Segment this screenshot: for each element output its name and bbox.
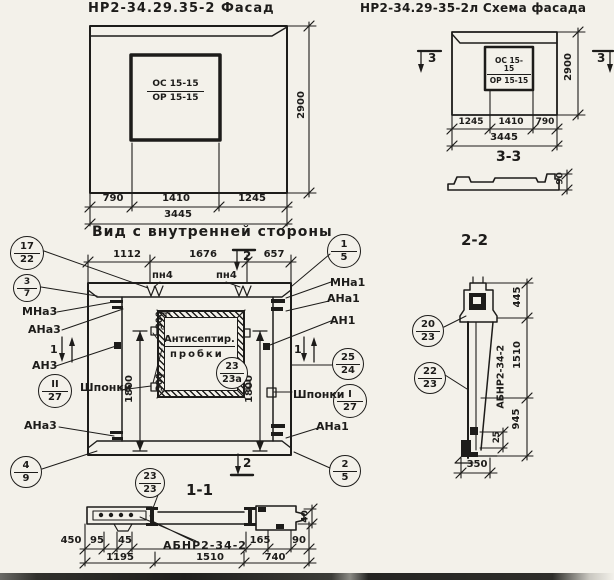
- callout-1-5: 1 5: [327, 234, 361, 268]
- schema-section-mark-right: 3: [597, 52, 605, 64]
- callout-top: 2: [333, 460, 357, 472]
- callout-25-24: 25 24: [332, 348, 364, 380]
- callout-23-23a: 23 23а: [216, 357, 248, 389]
- schema-section-mark-left: 3: [428, 52, 436, 64]
- s11-dim-165: 165: [248, 536, 272, 546]
- dim-plug-bottom: 300: [156, 371, 165, 393]
- label-ana1-bottom: АНа1: [316, 421, 349, 432]
- s22-dim-25: 25: [493, 429, 502, 445]
- facade-caption: Вид с внутренней стороны: [92, 225, 333, 239]
- s11-dim-95: 95: [88, 536, 106, 546]
- s11-dim-90: 90: [290, 536, 308, 546]
- callout-ii-27: II 27: [38, 374, 72, 408]
- s22-beam-label: АБНР2-34-2: [496, 334, 506, 420]
- note-antiseptic-line1: Антисептир.: [164, 335, 235, 347]
- s11-dim-740: 740: [262, 553, 288, 563]
- callout-bottom: 9: [14, 473, 38, 484]
- s22-dim-1510: 1510: [513, 340, 523, 370]
- main-top-dim-3: 657: [257, 250, 291, 260]
- s11-dim-1195: 1195: [105, 553, 135, 563]
- callout-top: 25: [336, 353, 360, 365]
- dim-1800-left: 1800: [125, 371, 135, 407]
- callout-bottom: 23: [139, 484, 161, 495]
- label-ana3-bottom: АНа3: [24, 420, 57, 431]
- s22-dim-350: 350: [465, 460, 489, 470]
- section-2-2-title: 2-2: [461, 233, 488, 248]
- section-mark-2-top: 2: [243, 250, 251, 262]
- label-ana3-top: АНа3: [28, 324, 61, 335]
- label-an3: АН3: [32, 360, 57, 371]
- label-mna1: МНа1: [330, 277, 365, 288]
- window-mark-bottom: ОР 15-15: [147, 92, 204, 103]
- scan-artifact-strip: [0, 573, 614, 580]
- callout-top: I: [337, 390, 363, 402]
- dim-plug-top: 300: [156, 309, 165, 331]
- callout-top: 3: [17, 278, 38, 289]
- s11-dim-1510: 1510: [193, 553, 227, 563]
- callout-bottom: 5: [331, 252, 357, 263]
- callout-top: II: [42, 380, 68, 392]
- callout-17-22: 17 22: [10, 236, 44, 270]
- section-mark-2-bottom: 2: [243, 457, 251, 469]
- facade-window-mark: ОС 15-15 ОР 15-15: [147, 80, 204, 103]
- callout-bottom: 23: [418, 379, 442, 390]
- schema-panel-linework: [418, 27, 613, 195]
- callout-top: 4: [14, 461, 38, 473]
- s11-dim-45: 45: [116, 536, 134, 546]
- s22-dim-945: 945: [512, 406, 522, 432]
- callout-4-9: 4 9: [10, 456, 42, 488]
- s11-beam-label: АБНР2-34-2: [163, 540, 247, 551]
- callout-top: 1: [331, 240, 357, 252]
- facade-dim-2: 1410: [146, 194, 206, 204]
- schema-dim-total: 3445: [486, 133, 522, 143]
- callout-bottom: 27: [337, 402, 363, 413]
- callout-20-23: 20 23: [412, 315, 444, 347]
- callout-top: 23: [220, 362, 244, 374]
- note-antiseptic-line2: пробки: [170, 350, 224, 360]
- facade-dim-1: 790: [93, 194, 133, 204]
- facade-dim-3: 1245: [222, 194, 282, 204]
- schema-dim-1: 1245: [453, 118, 489, 127]
- callout-3-7: 3 7: [13, 274, 41, 302]
- section-mark-1-right: 1: [294, 344, 302, 355]
- callout-top: 22: [418, 367, 442, 379]
- callout-top: 20: [416, 320, 440, 332]
- callout-2-5: 2 5: [329, 455, 361, 487]
- s22-dim-445: 445: [513, 283, 523, 311]
- s11-dim-450: 450: [58, 536, 84, 546]
- anchor-pn4-left: пн4: [152, 271, 173, 281]
- label-an1: АН1: [330, 315, 355, 326]
- anchor-pn4-right: пн4: [216, 271, 237, 281]
- schema-title: НР2-34.29-35-2л Схема фасада: [360, 2, 586, 14]
- callout-top: 23: [139, 472, 161, 484]
- window-mark-top: ОС 15-15: [487, 57, 531, 75]
- callout-bottom: 23: [416, 332, 440, 343]
- label-ana1-top: АНа1: [327, 293, 360, 304]
- callout-bottom: 24: [336, 365, 360, 376]
- label-mna3: МНа3: [22, 306, 57, 317]
- callout-bottom: 27: [42, 392, 68, 403]
- window-mark-top: ОС 15-15: [147, 80, 204, 92]
- callout-top: 17: [14, 242, 40, 254]
- section-3-3-thickness: 90: [557, 167, 566, 191]
- schema-window-mark: ОС 15-15 ОР 15-15: [487, 57, 531, 85]
- window-mark-bottom: ОР 15-15: [487, 75, 531, 85]
- main-top-dim-2: 1676: [183, 250, 223, 260]
- callout-i-27: I 27: [333, 384, 367, 418]
- s11-dim-40: 40: [302, 508, 311, 526]
- section-3-3-title: 3-3: [496, 150, 521, 164]
- schema-dim-2: 1410: [491, 118, 531, 127]
- section-mark-1-left: 1: [50, 344, 58, 355]
- schema-dim-height: 2900: [564, 47, 574, 87]
- callout-bottom: 23а: [220, 374, 244, 385]
- main-top-dim-1: 1112: [107, 250, 147, 260]
- callout-bottom: 7: [17, 289, 38, 299]
- facade-dim-height: 2900: [297, 85, 307, 125]
- callout-22-23: 22 23: [414, 362, 446, 394]
- facade-dim-total: 3445: [158, 210, 198, 220]
- callout-bottom: 5: [333, 472, 357, 483]
- facade-title: НР2-34.29.35-2 Фасад: [88, 2, 275, 15]
- drawing-sheet: НР2-34.29.35-2 Фасад ОС 15-15 ОР 15-15 2…: [0, 0, 614, 580]
- callout-bottom: 22: [14, 254, 40, 265]
- section-1-1-title: 1-1: [186, 483, 213, 498]
- schema-dim-3: 790: [532, 118, 558, 127]
- callout-23-23: 23 23: [135, 468, 165, 498]
